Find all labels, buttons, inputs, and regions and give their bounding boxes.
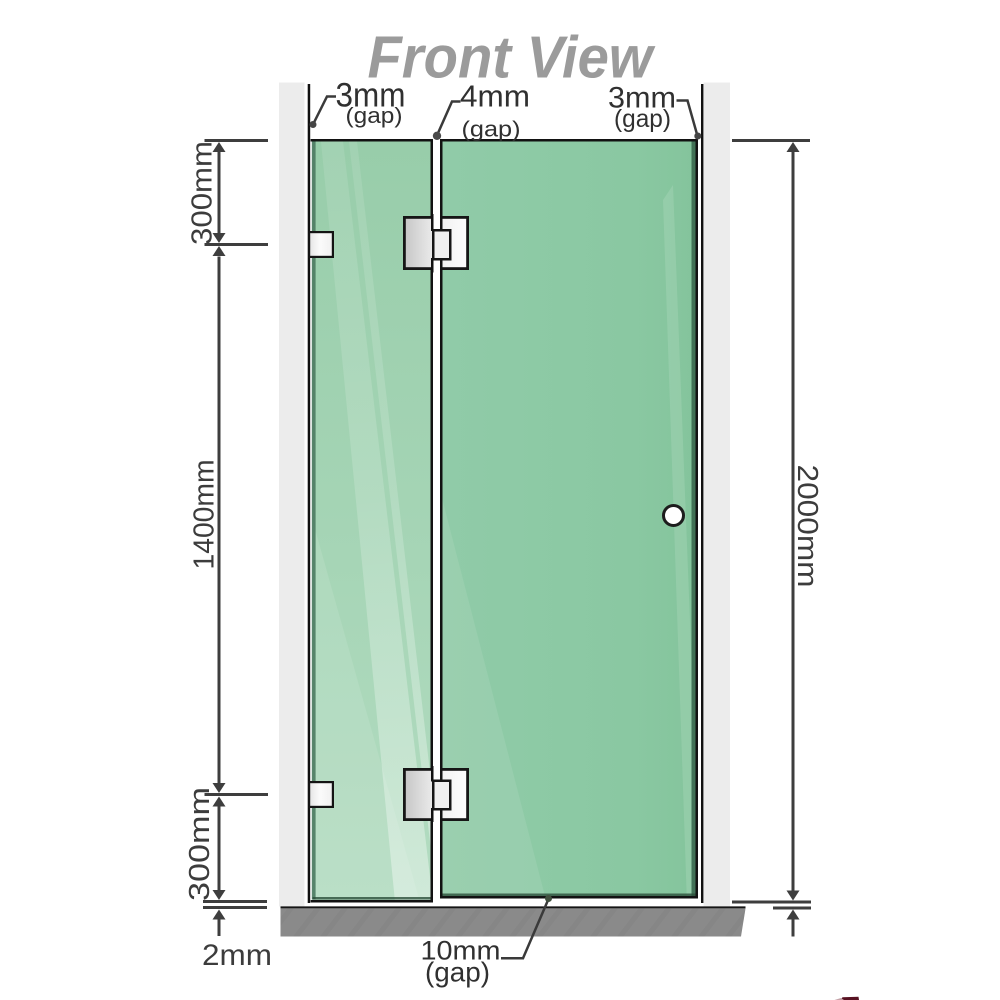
- svg-text:4mm: 4mm: [460, 79, 530, 114]
- svg-text:300mm: 300mm: [187, 141, 219, 245]
- svg-text:(gap): (gap): [614, 105, 671, 133]
- svg-text:2000mm: 2000mm: [791, 465, 823, 588]
- svg-text:(gap): (gap): [346, 103, 403, 128]
- svg-text:(gap): (gap): [425, 957, 490, 988]
- svg-text:2mm: 2mm: [202, 939, 272, 972]
- svg-text:300mm: 300mm: [184, 787, 216, 901]
- svg-text:(gap): (gap): [462, 117, 521, 142]
- svg-text:1400mm: 1400mm: [189, 460, 221, 570]
